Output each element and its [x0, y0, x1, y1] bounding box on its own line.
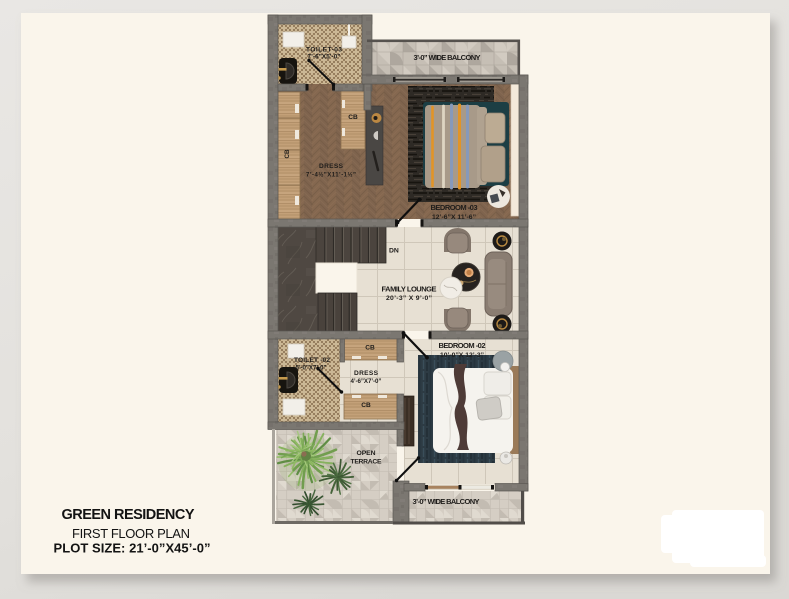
svg-text:DRESS: DRESS: [354, 370, 379, 377]
svg-text:BEDROOM -02: BEDROOM -02: [439, 341, 486, 350]
svg-text:FAMILY LOUNGE: FAMILY LOUNGE: [382, 285, 437, 294]
svg-text:CB: CB: [365, 345, 375, 352]
svg-text:CB: CB: [284, 149, 291, 158]
svg-text:CB: CB: [348, 114, 358, 121]
svg-text:TOILET-03: TOILET-03: [306, 47, 342, 54]
svg-text:GREEN RESIDENCY: GREEN RESIDENCY: [62, 507, 195, 523]
svg-text:5’-0”X7’-0”: 5’-0”X7’-0”: [296, 365, 327, 372]
svg-text:3’-0” WIDE BALCONY: 3’-0” WIDE BALCONY: [414, 53, 481, 62]
svg-text:12’-6”X 11’-6”: 12’-6”X 11’-6”: [432, 214, 476, 221]
svg-text:10’-0”X 12’-3”: 10’-0”X 12’-3”: [440, 352, 484, 359]
svg-text:7’-4½”X11’-1½”: 7’-4½”X11’-1½”: [306, 172, 356, 179]
svg-text:TOILET -02: TOILET -02: [294, 357, 330, 364]
svg-text:DRESS: DRESS: [319, 163, 344, 170]
svg-text:BEDROOM -03: BEDROOM -03: [431, 203, 478, 212]
svg-text:3’-0” WIDE BALCONY: 3’-0” WIDE BALCONY: [413, 497, 480, 506]
svg-text:7’-6”X5’-0”: 7’-6”X5’-0”: [308, 54, 341, 61]
svg-text:OPEN: OPEN: [357, 450, 376, 457]
svg-text:20’-3” X 9’-0”: 20’-3” X 9’-0”: [386, 295, 432, 302]
svg-text:4’-6”X7’-0”: 4’-6”X7’-0”: [351, 378, 382, 385]
svg-text:DN: DN: [389, 248, 399, 255]
svg-text:TERRACE: TERRACE: [351, 459, 382, 466]
svg-text:PLOT SIZE: 21’-0”X45’-0”: PLOT SIZE: 21’-0”X45’-0”: [54, 541, 211, 556]
svg-text:FIRST FLOOR PLAN: FIRST FLOOR PLAN: [72, 526, 190, 541]
svg-text:CB: CB: [361, 402, 371, 409]
